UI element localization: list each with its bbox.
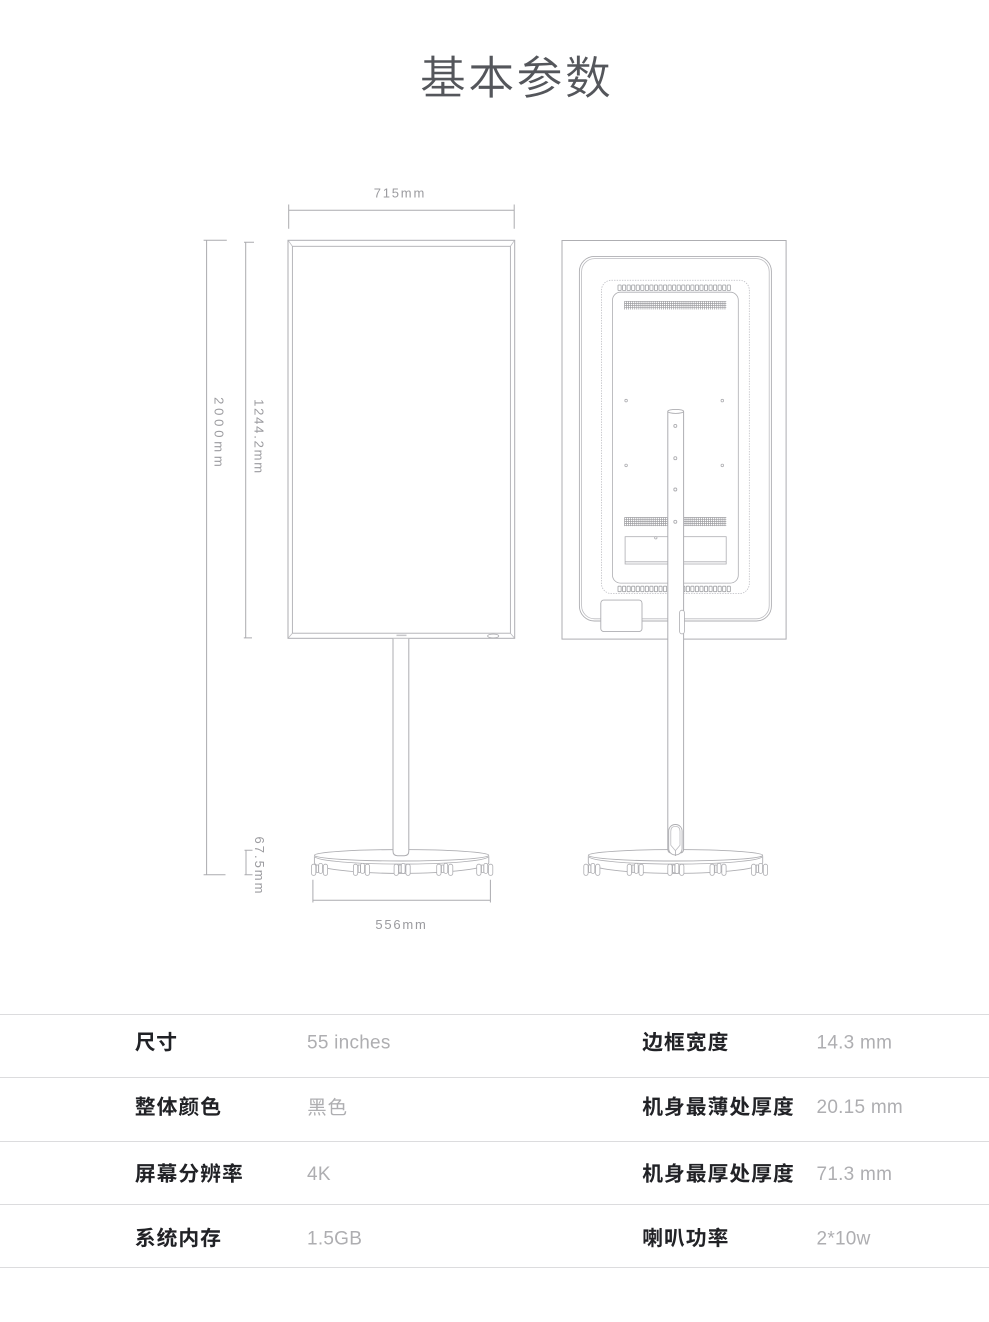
svg-text:71.3 mm: 71.3 mm [817,1164,893,1185]
svg-text:1244.2mm: 1244.2mm [251,399,266,475]
svg-text:2*10w: 2*10w [817,1228,871,1249]
svg-text:14.3 mm: 14.3 mm [817,1033,893,1054]
svg-text:556mm: 556mm [375,917,427,932]
svg-text:67.5mm: 67.5mm [252,837,267,896]
svg-text:2000mm: 2000mm [211,397,226,470]
svg-text:1.5GB: 1.5GB [307,1228,362,1249]
svg-text:4K: 4K [307,1164,331,1185]
svg-text:55 inches: 55 inches [307,1033,391,1054]
svg-text:20.15 mm: 20.15 mm [817,1097,903,1118]
svg-text:715mm: 715mm [374,186,426,201]
